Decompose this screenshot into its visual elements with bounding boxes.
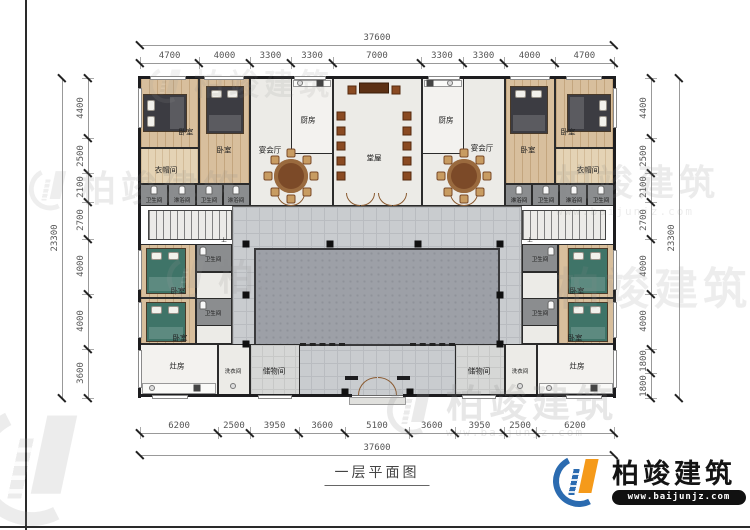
room-label-cloakroom: 衣帽间 <box>155 165 178 176</box>
room-label-kitchen: 厨房 <box>439 115 454 126</box>
dim-bottom-segment-label: 6200 <box>168 421 190 431</box>
room-label-shower: 淋浴间 <box>228 196 245 204</box>
dim-bottom-segment-label: 3600 <box>311 421 333 431</box>
banquet-chair <box>270 188 279 197</box>
dim-right-segment-label: 4400 <box>639 97 649 119</box>
watermark-logo-icon <box>28 167 72 211</box>
room-label-stove: 灶房 <box>170 361 185 372</box>
dim-bottom-segment-label: 3950 <box>264 421 286 431</box>
sink <box>149 385 155 391</box>
window <box>138 302 142 338</box>
hall-chair <box>348 86 357 95</box>
courtyard-column <box>415 241 422 248</box>
room-label-bathroom: 卫生间 <box>146 196 163 204</box>
banquet-chair <box>287 149 296 158</box>
toilet <box>233 186 240 195</box>
banquet-chair <box>483 172 492 181</box>
room-label-bathroom: 卫生间 <box>532 309 549 317</box>
toilet <box>179 186 186 195</box>
hall-chair <box>403 157 412 166</box>
dim-top-segment-label: 3300 <box>473 51 495 61</box>
room-label-stove: 灶房 <box>570 361 585 372</box>
courtyard-column <box>243 341 250 348</box>
stove-fixture <box>194 385 201 392</box>
room-label-bathroom: 卫生间 <box>205 255 222 263</box>
dim-left-segment-label: 4400 <box>76 97 86 119</box>
dim-bottom-segment-label: 5100 <box>366 421 388 431</box>
toilet <box>548 301 555 310</box>
dim-right-total-label: 23300 <box>667 224 677 251</box>
room-label-bedroom: 卧室 <box>217 145 232 156</box>
sink <box>297 80 303 86</box>
window <box>613 250 617 290</box>
vestibule-wall <box>345 376 358 380</box>
altar-table <box>359 83 389 94</box>
room-label-bedroom: 卧室 <box>521 145 536 156</box>
dim-top-segment-label: 3300 <box>301 51 323 61</box>
dim-left-segment-label: 2100 <box>76 176 86 198</box>
sink <box>546 385 552 391</box>
window <box>613 302 617 338</box>
toilet <box>571 186 578 195</box>
window <box>462 395 496 399</box>
banquet-chair <box>460 195 469 204</box>
hall-chair <box>337 127 346 136</box>
toilet <box>206 186 213 195</box>
room-label-shower: 淋浴间 <box>566 196 583 204</box>
dim-bottom-segment-label: 2500 <box>223 421 245 431</box>
dim-top-segment-label: 3300 <box>431 51 453 61</box>
sink <box>230 383 236 389</box>
brand-logo-block[interactable]: 柏竣建筑 www.baijunjz.com <box>552 450 748 516</box>
window <box>152 395 188 399</box>
bed <box>510 86 548 134</box>
dim-top-total-line <box>140 45 614 46</box>
dim-top-segment-label: 4000 <box>519 51 541 61</box>
dim-left-segment-label: 3600 <box>76 362 86 384</box>
room-label-bedroom: 卧室 <box>171 286 186 297</box>
banquet-chair <box>437 172 446 181</box>
toilet <box>151 186 158 195</box>
stove-fixture <box>317 80 324 87</box>
room-label-shower: 淋浴间 <box>511 196 528 204</box>
window <box>258 395 292 399</box>
courtyard-column <box>243 241 250 248</box>
banquet-chair <box>270 155 279 164</box>
dim-right-segment-label: 1800 <box>639 350 649 372</box>
courtyard-column <box>342 389 349 396</box>
dim-bottom-segment-label: 3950 <box>469 421 491 431</box>
sink <box>517 383 523 389</box>
hall-chair <box>403 172 412 181</box>
room-label-laundry: 洗衣间 <box>225 367 242 375</box>
window <box>613 88 617 128</box>
hall-chair <box>337 142 346 151</box>
room-label-storage: 储物间 <box>468 366 491 377</box>
sink <box>447 80 453 86</box>
room-label-storage: 储物间 <box>263 366 286 377</box>
dim-top-segment-label: 4700 <box>574 51 596 61</box>
courtyard-column <box>497 341 504 348</box>
banquet-chair <box>460 149 469 158</box>
dim-left-segment-label: 2500 <box>76 145 86 167</box>
room-label-bathroom: 卫生间 <box>205 309 222 317</box>
stove-fixture <box>591 385 598 392</box>
dim-left-total-line <box>62 78 63 398</box>
inner-courtyard <box>254 248 500 346</box>
dim-right-segment-label: 1800 <box>639 375 649 397</box>
window <box>566 76 602 80</box>
dim-right-segment-label: 4000 <box>639 310 649 332</box>
toilet <box>543 186 550 195</box>
dim-left-segment-label: 4000 <box>76 310 86 332</box>
staircase-left <box>148 210 232 240</box>
dim-bottom-segment-line <box>140 433 614 434</box>
dim-bottom-total-label: 37600 <box>363 443 390 453</box>
dim-top-segment-label: 3300 <box>260 51 282 61</box>
page-title: 一层平面图 <box>325 462 430 486</box>
room-label-bedroom: 卧室 <box>561 127 576 138</box>
hall-chair <box>337 157 346 166</box>
bed <box>206 86 244 134</box>
room-label-bedroom: 卧室 <box>179 127 194 138</box>
room-label-bedroom: 卧室 <box>570 286 585 297</box>
window <box>566 395 602 399</box>
sheet-frame-line <box>0 526 750 528</box>
window <box>204 76 244 80</box>
room-label-bathroom: 卫生间 <box>593 196 610 204</box>
banquet-chair <box>443 188 452 197</box>
hall-chair <box>337 172 346 181</box>
stove-fixture <box>427 80 434 87</box>
room-label-hall: 堂屋 <box>367 153 382 164</box>
room-label-kitchen: 厨房 <box>301 115 316 126</box>
window <box>613 350 617 388</box>
brand-name: 柏竣建筑 <box>612 452 748 491</box>
dim-right-segment-label: 2700 <box>639 209 649 231</box>
room-label-cloakroom: 衣帽间 <box>577 165 600 176</box>
window <box>138 250 142 290</box>
window <box>138 88 142 128</box>
dim-left-segment-label: 2700 <box>76 209 86 231</box>
banquet-chair <box>303 188 312 197</box>
stairs-up-label: 上 <box>527 236 533 244</box>
banquet-chair <box>476 155 485 164</box>
courtyard-column <box>327 241 334 248</box>
brand-logo-icon <box>552 454 606 508</box>
room-label-banquet: 宴会厅 <box>471 143 494 154</box>
entrance-step <box>349 397 406 405</box>
toilet <box>598 186 605 195</box>
vestibule-wall <box>397 376 410 380</box>
room-label-bedroom: 卧室 <box>173 333 188 344</box>
staircase-right <box>522 210 606 240</box>
floorplan-sheet: 卧室 卧室 衣帽间 宴会厅 厨房 堂屋 厨房 宴会厅 卧室 卧室 衣帽间 卫生间… <box>0 0 750 530</box>
brand-url[interactable]: www.baijunjz.com <box>612 490 746 505</box>
hall-chair <box>403 112 412 121</box>
dim-bottom-total-line <box>140 455 614 456</box>
courtyard-column <box>243 292 250 299</box>
window <box>138 350 142 388</box>
colonnade-wall <box>410 343 455 346</box>
dim-top-segment-label: 4000 <box>214 51 236 61</box>
banquet-chair <box>303 155 312 164</box>
banquet-chair <box>287 195 296 204</box>
stairs-up-label: 上 <box>221 236 227 244</box>
courtyard-column <box>407 389 414 396</box>
dim-left-segment-label: 4000 <box>76 255 86 277</box>
toilet <box>516 186 523 195</box>
room-label-bedroom: 卧室 <box>568 333 583 344</box>
window <box>150 76 186 80</box>
dim-top-segment-label: 4700 <box>159 51 181 61</box>
sheet-frame-line <box>25 0 27 530</box>
dim-right-segment-label: 2100 <box>639 176 649 198</box>
window <box>510 76 550 80</box>
courtyard-column <box>497 241 504 248</box>
banquet-chair <box>443 155 452 164</box>
dim-top-total-label: 37600 <box>363 33 390 43</box>
hall-chair <box>403 127 412 136</box>
dim-bottom-segment-label: 6200 <box>564 421 586 431</box>
dim-top-segment-label: 7000 <box>366 51 388 61</box>
courtyard-column <box>497 292 504 299</box>
dim-bottom-segment-label: 3600 <box>421 421 443 431</box>
dim-left-total-label: 23300 <box>50 224 60 251</box>
hall-chair <box>403 142 412 151</box>
room-label-bathroom: 卫生间 <box>201 196 218 204</box>
dim-right-segment-label: 4000 <box>639 255 649 277</box>
banquet-chair <box>264 172 273 181</box>
room-label-laundry: 洗衣间 <box>512 367 529 375</box>
dim-right-total-line <box>679 78 680 398</box>
room-label-bathroom: 卫生间 <box>538 196 555 204</box>
room-label-shower: 淋浴间 <box>174 196 191 204</box>
window <box>428 76 460 80</box>
dim-bottom-segment-label: 2500 <box>509 421 531 431</box>
toilet <box>200 301 207 310</box>
dim-top-segment-line <box>140 63 614 64</box>
window <box>294 76 326 80</box>
toilet <box>548 247 555 256</box>
banquet-chair <box>310 172 319 181</box>
hall-chair <box>392 86 401 95</box>
colonnade-wall <box>300 343 345 346</box>
banquet-chair <box>476 188 485 197</box>
room-label-bathroom: 卫生间 <box>532 255 549 263</box>
room-label-banquet: 宴会厅 <box>259 145 282 156</box>
toilet <box>200 247 207 256</box>
hall-chair <box>337 112 346 121</box>
watermark-logo-icon <box>0 404 94 528</box>
dim-right-segment-label: 2500 <box>639 145 649 167</box>
